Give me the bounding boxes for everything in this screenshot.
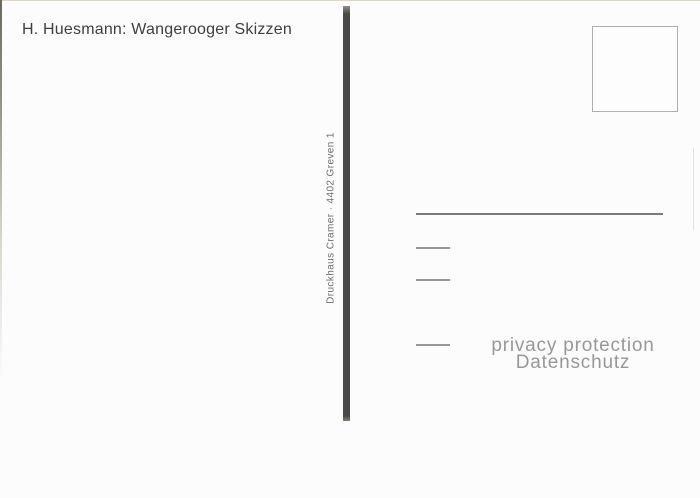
divider-bar xyxy=(343,6,350,421)
watermark-line-2: Datenschutz xyxy=(448,354,698,371)
scan-edge-right xyxy=(693,148,694,230)
card-title: H. Huesmann: Wangerooger Skizzen xyxy=(22,21,292,39)
address-line-short-2 xyxy=(416,279,450,281)
stamp-box xyxy=(592,26,678,112)
privacy-watermark: privacy protection Datenschutz xyxy=(448,337,698,371)
address-line-short-3 xyxy=(416,344,450,346)
printer-imprint: Druckhaus Cramer · 4402 Greven 1 xyxy=(326,132,337,304)
address-line-long xyxy=(416,213,663,215)
scan-edge-top xyxy=(0,0,700,1)
address-line-short-1 xyxy=(416,247,450,249)
postcard-back: H. Huesmann: Wangerooger Skizzen Druckha… xyxy=(0,0,700,498)
scan-edge-left xyxy=(0,0,2,380)
